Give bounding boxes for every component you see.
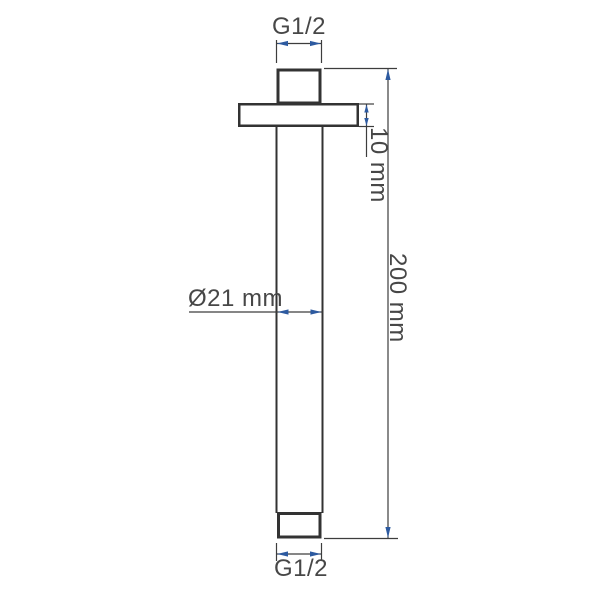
arrow-left-icon bbox=[277, 41, 288, 46]
arrow-right-icon bbox=[310, 41, 321, 46]
ceiling-flange bbox=[239, 104, 358, 126]
drawing-linework bbox=[0, 0, 600, 600]
top-thread-label: G1/2 bbox=[260, 15, 338, 39]
tube-body bbox=[277, 126, 323, 513]
overall-length-label: 200 mm bbox=[386, 253, 408, 343]
arrow-right-icon bbox=[311, 309, 322, 314]
bottom-thread-label: G1/2 bbox=[260, 557, 342, 581]
top-thread-connector bbox=[278, 70, 320, 103]
bottom-thread-connector bbox=[279, 514, 321, 538]
arrow-up-icon bbox=[364, 105, 368, 113]
arrow-up-icon bbox=[385, 69, 390, 80]
flange-thickness-label: 10 mm bbox=[367, 127, 389, 203]
technical-drawing-canvas: G1/2 10 mm 200 mm Ø21 mm G1/2 bbox=[0, 0, 600, 600]
arrow-down-icon bbox=[385, 527, 390, 538]
tube-diameter-label: Ø21 mm bbox=[188, 287, 283, 311]
arrow-down-icon bbox=[364, 118, 368, 126]
